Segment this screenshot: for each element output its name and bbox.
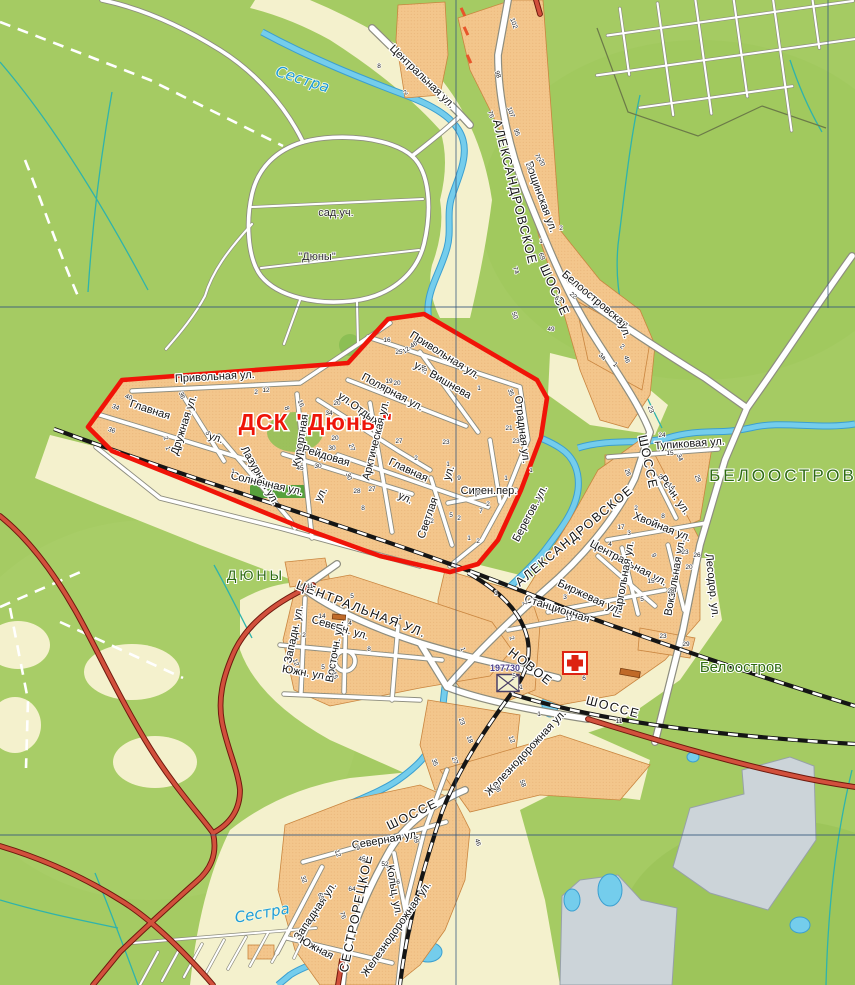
house-number: 1 <box>398 614 402 621</box>
house-number: 23 <box>659 633 667 640</box>
house-number: 49 <box>547 326 555 333</box>
house-number: 8 <box>361 505 365 512</box>
house-number: 1 <box>467 535 471 542</box>
house-number: 5 <box>321 664 325 671</box>
house-number: 1 <box>494 590 498 597</box>
house-number: 9 <box>457 475 461 482</box>
house-number: 1 <box>446 461 450 468</box>
house-number: 45 <box>296 465 304 472</box>
house-number: 27 <box>395 438 403 445</box>
house-number: 9 <box>476 490 480 497</box>
house-number: 20 <box>333 400 341 407</box>
house-number: 8 <box>377 63 381 70</box>
house-number: 2 <box>486 501 490 508</box>
house-number: 1 <box>477 385 481 392</box>
house-number: 2 <box>302 632 306 639</box>
street-label: Сирен.пер. <box>461 485 518 497</box>
house-number: 23 <box>442 439 450 446</box>
house-number: 52 <box>381 861 389 868</box>
house-number: 15 <box>666 450 674 457</box>
place-label-sad-uch: сад.уч. <box>318 207 353 219</box>
house-number: 2 <box>634 505 638 512</box>
house-number: 1 <box>519 684 523 691</box>
house-number: 17 <box>617 524 625 531</box>
house-number: 4 <box>348 620 352 627</box>
house-number: 6 <box>396 879 400 886</box>
house-number: 4 <box>608 541 612 548</box>
medical-cross-icon <box>567 660 583 667</box>
map-canvas[interactable]: БЕЛООСТРОВ Белоостров ДЮНЫ сад.уч. "Дюны… <box>0 0 855 985</box>
house-number: 29 <box>682 641 690 648</box>
place-label-dyuny-quoted: "Дюны" <box>298 251 336 263</box>
house-number: 1 <box>539 238 543 245</box>
house-number: 5 <box>449 512 453 519</box>
house-number: 30 <box>328 445 336 452</box>
house-number: 11 <box>307 583 314 590</box>
house-number: 28 <box>353 488 361 495</box>
place-label-station: Белоостров <box>700 659 782 676</box>
house-number: 23 <box>681 549 689 556</box>
house-number: 8 <box>367 646 371 653</box>
house-number: 6 <box>582 675 586 682</box>
house-number: 17 <box>565 615 573 622</box>
house-number: 16 <box>383 337 391 344</box>
house-number: 2 <box>476 538 480 545</box>
house-number: 12 <box>262 387 270 394</box>
house-number: 2 <box>430 518 434 525</box>
house-number: 27 <box>368 486 376 493</box>
house-number: 8 <box>661 513 665 520</box>
house-number: 34 <box>325 410 333 417</box>
house-number: 11 <box>616 718 623 725</box>
house-number: 20 <box>331 435 339 442</box>
place-label-dyuny: ДЮНЫ <box>227 567 285 583</box>
house-number: 19 <box>385 378 393 385</box>
house-number: 28 <box>667 588 675 595</box>
house-number: 2 <box>559 225 563 232</box>
house-number: 21 <box>505 425 513 432</box>
house-number: 5 <box>512 673 516 680</box>
house-number: 45 <box>358 856 366 863</box>
house-number: 1 <box>504 475 508 482</box>
house-number: 1 <box>231 468 235 475</box>
house-number: 3 <box>563 594 567 601</box>
house-number: 64 <box>348 886 356 893</box>
house-number: 2 <box>254 389 258 396</box>
house-number: 20 <box>393 380 401 387</box>
house-number: 26 <box>693 552 701 559</box>
house-number: 14 <box>318 613 326 620</box>
topographic-map: БЕЛООСТРОВ Белоостров ДЮНЫ сад.уч. "Дюны… <box>0 0 855 985</box>
house-number: 24 <box>658 432 666 439</box>
house-number: 15 <box>647 578 655 585</box>
house-number: 2 <box>457 515 461 522</box>
house-number: 9 <box>356 845 360 852</box>
house-number: 3 <box>627 530 631 537</box>
postal-code-label: 197730 <box>490 663 520 673</box>
house-number: 2 <box>414 455 418 462</box>
house-number: 7 <box>537 498 541 505</box>
house-number: 20 <box>685 564 693 571</box>
house-number: 5 <box>350 593 354 600</box>
house-number: 1 <box>529 467 533 474</box>
house-number: 7 <box>479 508 483 515</box>
house-number: 30 <box>314 463 322 470</box>
house-number: 5 <box>640 596 644 603</box>
house-number: 23 <box>512 438 520 445</box>
house-number: 1 <box>537 711 541 718</box>
place-label-beloostrov: БЕЛООСТРОВ <box>709 466 855 485</box>
